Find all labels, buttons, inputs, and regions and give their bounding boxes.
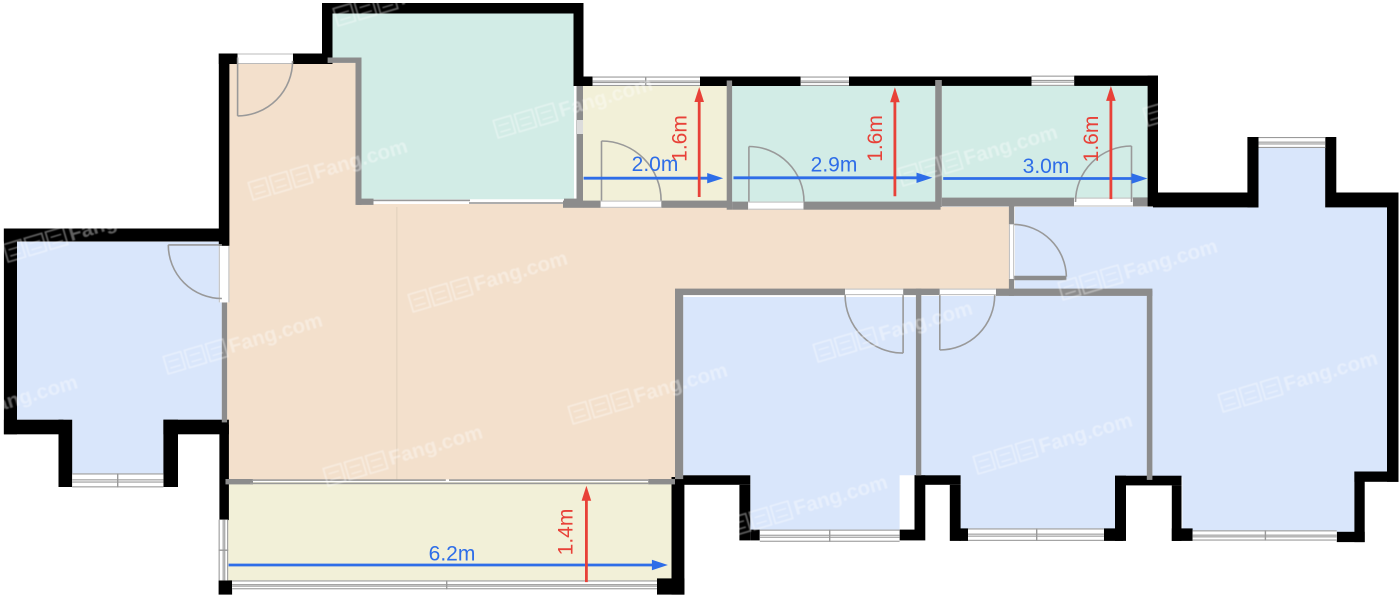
svg-text:3.0m: 3.0m — [1023, 155, 1070, 178]
svg-text:2.9m: 2.9m — [811, 154, 858, 177]
svg-text:1.4m: 1.4m — [555, 509, 578, 556]
svg-text:Fang.com: Fang.com — [1206, 61, 1305, 111]
svg-text:6.2m: 6.2m — [429, 543, 476, 566]
svg-text:1.6m: 1.6m — [1080, 116, 1103, 163]
svg-text:1.6m: 1.6m — [669, 115, 692, 162]
svg-text:1.6m: 1.6m — [864, 115, 887, 162]
